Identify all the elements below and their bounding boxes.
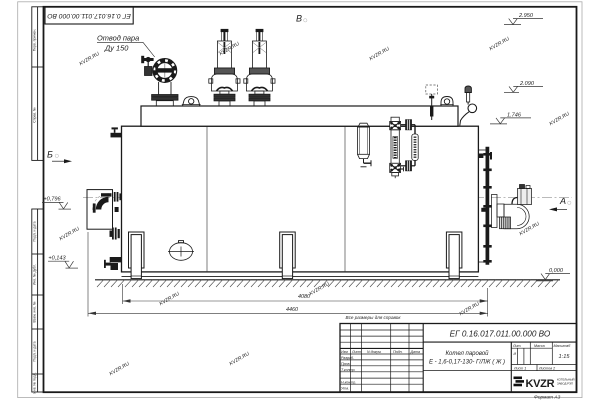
- svg-text:В: В: [296, 14, 302, 24]
- svg-text:Утв.: Утв.: [341, 387, 349, 391]
- svg-text:Н.контр.: Н.контр.: [341, 381, 356, 385]
- svg-text:Масса: Масса: [534, 344, 545, 348]
- svg-text:Лит.: Лит.: [512, 344, 521, 348]
- svg-text:N докум.: N докум.: [367, 350, 382, 354]
- svg-text:Подп.: Подп.: [393, 350, 403, 354]
- svg-text:Дата: Дата: [410, 350, 420, 354]
- svg-text:Лист 1: Лист 1: [513, 367, 526, 371]
- svg-text:Взам. инв. №: Взам. инв. №: [33, 301, 37, 322]
- svg-text:Разраб.: Разраб.: [341, 356, 354, 360]
- svg-text:KVZR: KVZR: [526, 378, 555, 390]
- svg-text:ЕГ 0.16.017.011.00.000 ВО: ЕГ 0.16.017.011.00.000 ВО: [450, 330, 551, 339]
- svg-text:Т.контр.: Т.контр.: [341, 368, 356, 372]
- svg-text:ЗАВОД РЭП: ЗАВОД РЭП: [557, 382, 573, 386]
- svg-text:4080: 4080: [298, 294, 310, 300]
- svg-text:Подп. и дата: Подп. и дата: [33, 341, 37, 361]
- svg-text:Б: Б: [47, 150, 53, 160]
- svg-text:Формат А3: Формат А3: [534, 395, 561, 400]
- svg-text:Изм: Изм: [341, 350, 348, 354]
- svg-text:Е - 1,6-0,17-130- Г/ЛЖ ( Ж ): Е - 1,6-0,17-130- Г/ЛЖ ( Ж ): [429, 360, 505, 366]
- svg-text:ЕГ 0.16.017.011.00.000 ВО: ЕГ 0.16.017.011.00.000 ВО: [47, 12, 131, 19]
- svg-text:+0,143: +0,143: [48, 256, 66, 262]
- svg-text:Пров.: Пров.: [341, 362, 350, 366]
- svg-text:Масштаб: Масштаб: [554, 344, 572, 348]
- svg-text:Перв. примен.: Перв. примен.: [33, 29, 37, 52]
- svg-text:И: И: [514, 352, 517, 356]
- svg-text:2.950: 2.950: [518, 13, 534, 19]
- svg-text:0,000: 0,000: [549, 268, 564, 274]
- svg-text:Листов 2: Листов 2: [538, 367, 555, 371]
- svg-text:Инв. № дубл.: Инв. № дубл.: [33, 264, 37, 285]
- svg-text:Подп. и дата: Подп. и дата: [33, 221, 37, 241]
- svg-text:Инв. № подл.: Инв. № подл.: [33, 372, 37, 393]
- svg-text:1:15: 1:15: [559, 354, 571, 360]
- svg-text:Справ. №: Справ. №: [33, 107, 37, 123]
- svg-text:Отвод пара: Отвод пара: [97, 34, 139, 43]
- svg-text:Ду 150: Ду 150: [104, 44, 129, 53]
- svg-text:Все размеры для справок: Все размеры для справок: [346, 315, 402, 320]
- svg-text:Лист: Лист: [351, 350, 361, 354]
- svg-text:4460: 4460: [286, 307, 298, 313]
- svg-text:Котел паровой: Котел паровой: [445, 350, 489, 357]
- svg-text:+0,796: +0,796: [43, 197, 61, 203]
